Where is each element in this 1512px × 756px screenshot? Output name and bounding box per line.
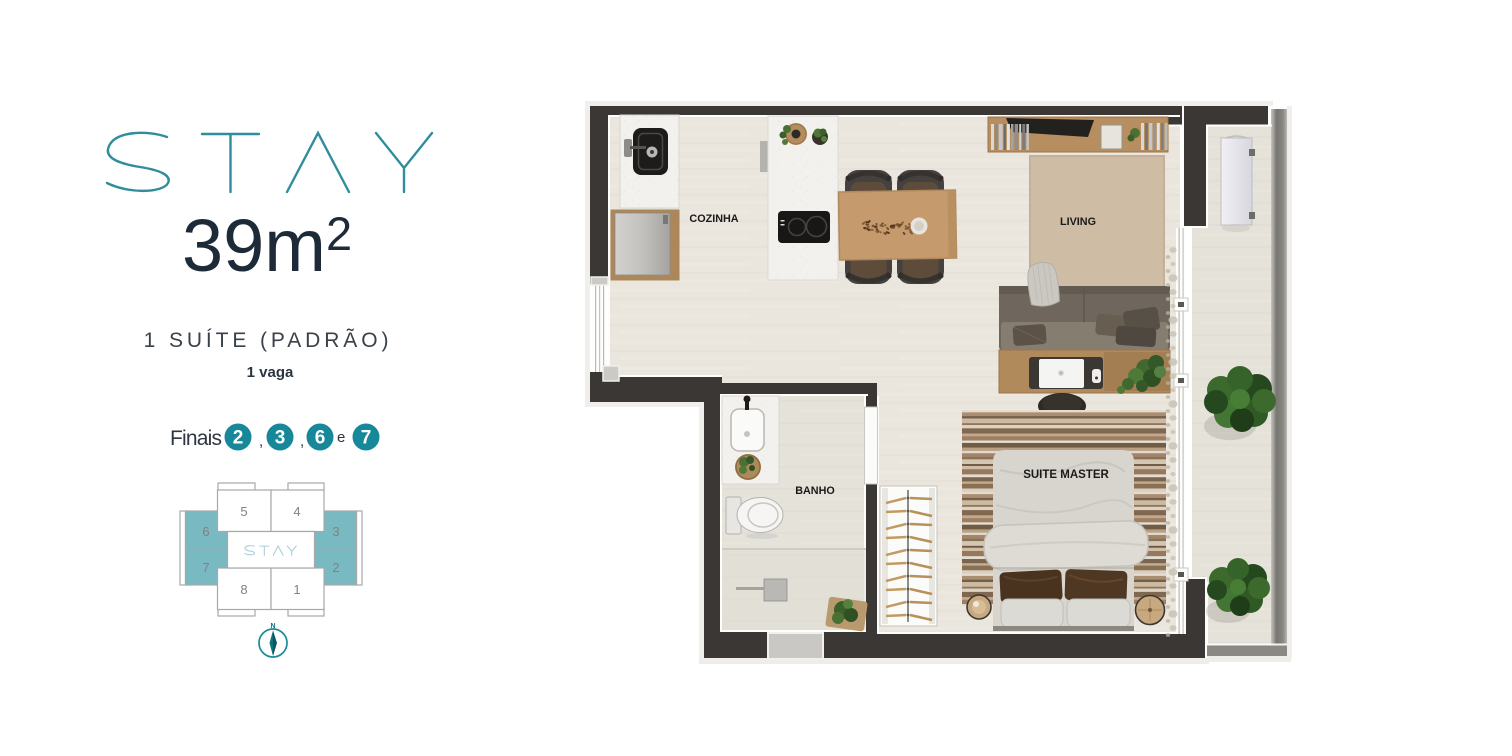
svg-text:LIVING: LIVING (1060, 216, 1096, 228)
svg-text:,: , (259, 433, 263, 450)
svg-text:2: 2 (332, 560, 339, 575)
svg-text:e: e (337, 429, 345, 446)
svg-text:1 SUÍTE (PADRÃO): 1 SUÍTE (PADRÃO) (144, 328, 393, 352)
svg-text:COZINHA: COZINHA (689, 213, 738, 225)
svg-text:7: 7 (202, 560, 209, 575)
svg-text:39m2: 39m2 (182, 204, 352, 287)
svg-text:6: 6 (315, 428, 326, 449)
svg-text:,: , (300, 433, 304, 450)
svg-text:4: 4 (293, 504, 300, 519)
svg-text:Finais: Finais (170, 427, 222, 450)
svg-text:1: 1 (293, 582, 300, 597)
svg-text:6: 6 (202, 524, 209, 539)
svg-text:1 vaga: 1 vaga (247, 364, 294, 381)
svg-text:7: 7 (361, 428, 372, 449)
svg-text:8: 8 (240, 582, 247, 597)
svg-text:BANHO: BANHO (795, 485, 835, 497)
svg-text:3: 3 (275, 428, 286, 449)
svg-text:N: N (270, 623, 275, 630)
svg-text:2: 2 (233, 428, 244, 449)
svg-text:3: 3 (332, 524, 339, 539)
svg-text:SUITE MASTER: SUITE MASTER (1023, 469, 1109, 481)
svg-text:5: 5 (240, 504, 247, 519)
